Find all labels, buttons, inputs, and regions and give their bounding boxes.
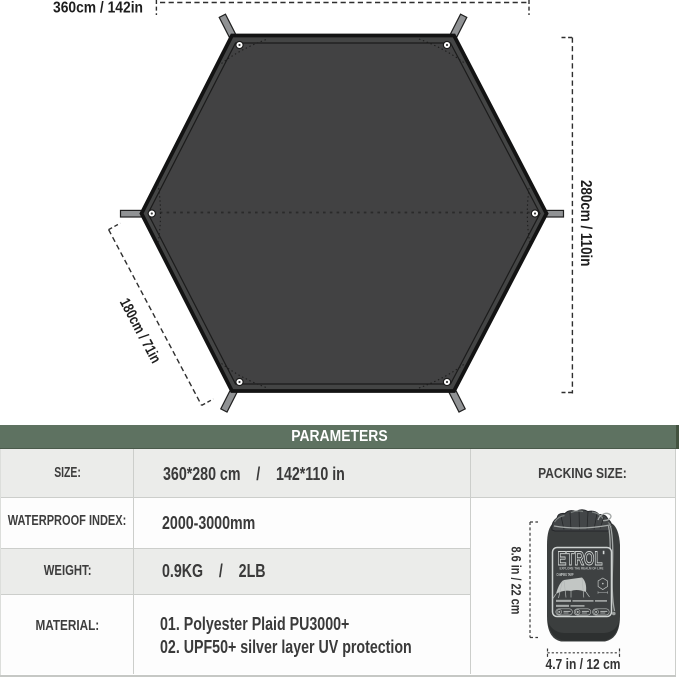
svg-text:CAMPING TARP: CAMPING TARP [557,572,574,577]
svg-text:4.7 in / 12 cm: 4.7 in / 12 cm [546,656,621,673]
svg-text:EXPLORE THE REALM OF LIFE: EXPLORE THE REALM OF LIFE [560,566,604,571]
svg-text:180cm / 71in: 180cm / 71in [116,296,164,367]
svg-text:8.6 in / 22 cm: 8.6 in / 22 cm [509,547,524,615]
svg-text:280cm / 110in: 280cm / 110in [577,180,594,267]
svg-text:360cm / 142in: 360cm / 142in [53,0,143,16]
